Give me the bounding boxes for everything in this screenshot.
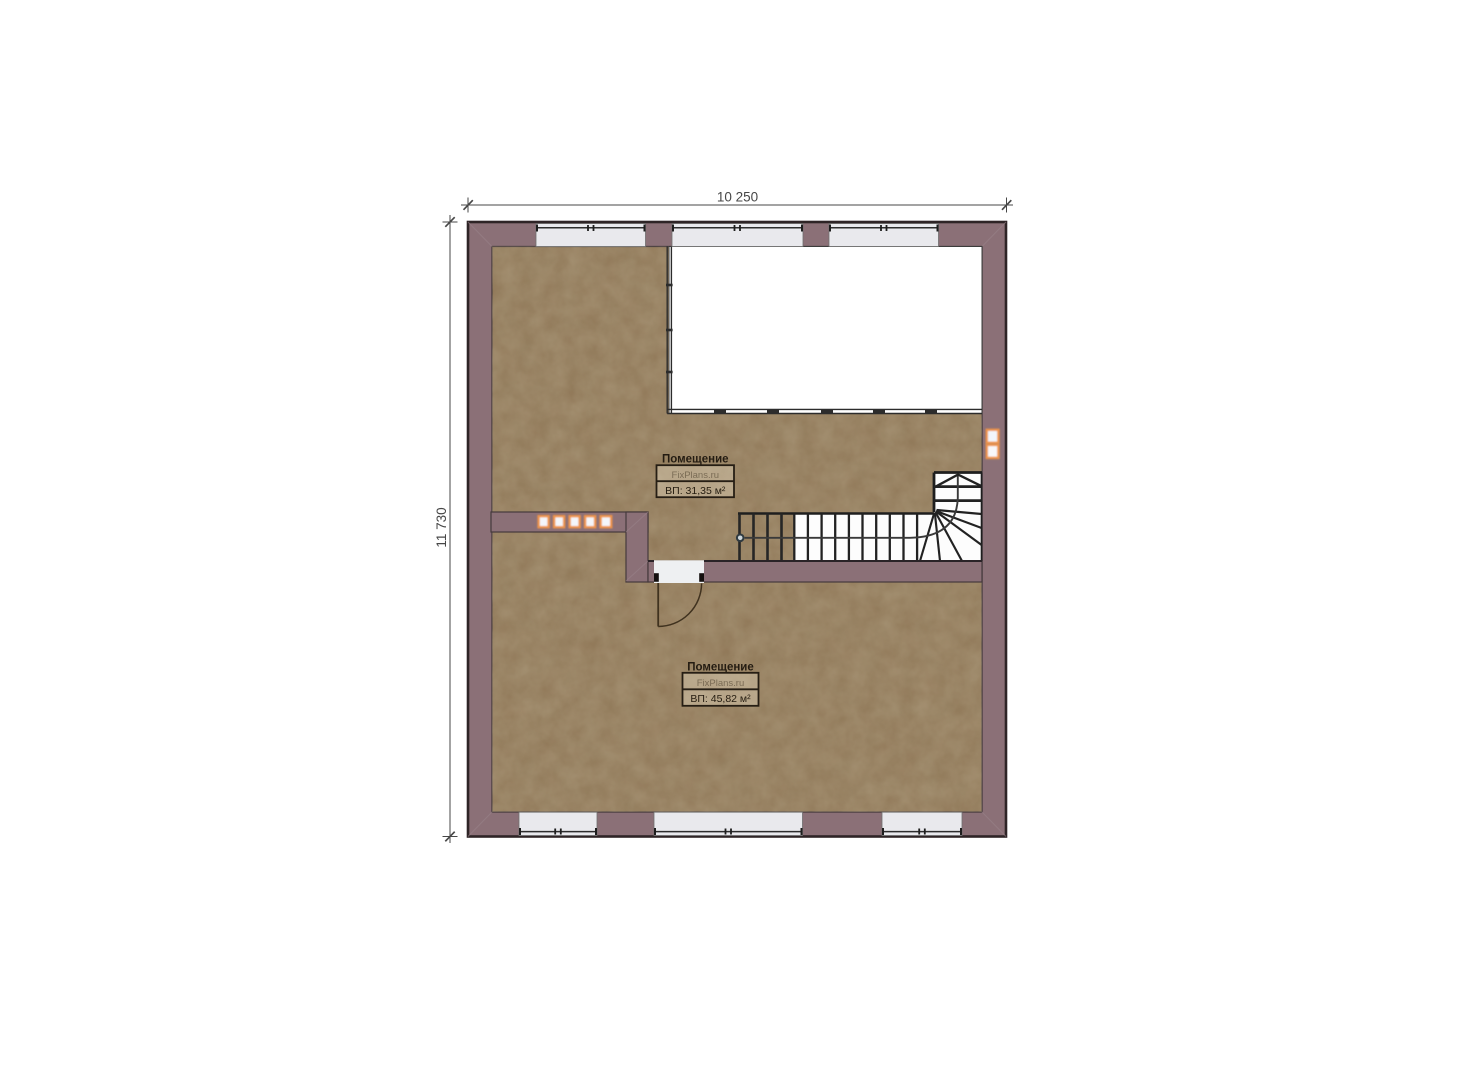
svg-text:11 730: 11 730 [434, 507, 449, 547]
svg-text:FixPlans.ru: FixPlans.ru [672, 470, 720, 481]
svg-text:ВП: 45,82 м²: ВП: 45,82 м² [690, 693, 751, 705]
svg-text:FixPlans.ru: FixPlans.ru [697, 678, 745, 689]
svg-text:ВП: 31,35 м²: ВП: 31,35 м² [665, 485, 726, 497]
svg-text:Помещение: Помещение [662, 454, 729, 466]
svg-text:10 250: 10 250 [717, 190, 758, 205]
svg-text:Помещение: Помещение [687, 662, 754, 674]
